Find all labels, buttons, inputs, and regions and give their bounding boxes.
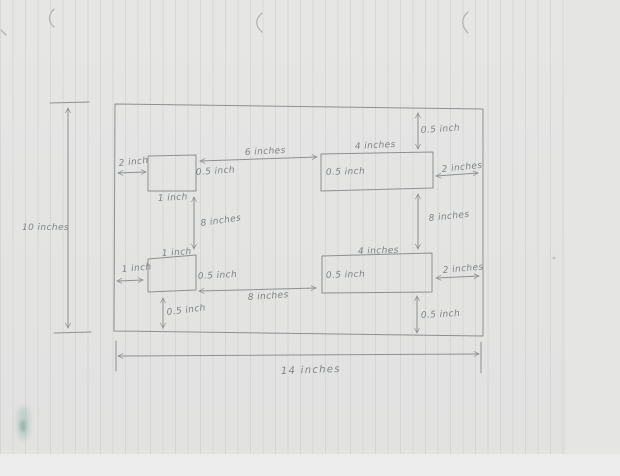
dim-bottom-left-panel: 1 inch 1 inch 0.5 inch 0.5 inch [117, 247, 237, 328]
dim-label-left-gap: 2 inch [118, 156, 149, 169]
dim-mid-right-gap: 8 inches [418, 194, 470, 249]
panel-top-left [148, 155, 196, 191]
dim-label-inner: 0.5 inch [326, 167, 366, 178]
dim-top-gap: 6 inches [200, 146, 317, 161]
dim-tick [54, 332, 91, 333]
dim-label-below: 0.5 inch [166, 303, 206, 318]
dim-label-half-inch: 0.5 inch [196, 165, 236, 178]
dim-label-right-gap: 2 inches [442, 262, 484, 276]
paper-sheet: 10 inches 14 inches 2 inch 0.5 inch 1 in… [0, 0, 620, 476]
dim-overall-height: 10 inches [22, 102, 91, 333]
dim-label-width: 4 inches [355, 140, 396, 152]
curl-mark-icon [463, 12, 468, 33]
dim-tick [50, 102, 89, 103]
outer-rectangle [114, 104, 483, 336]
dimension-sketch: 10 inches 14 inches 2 inch 0.5 inch 1 in… [0, 0, 620, 476]
dim-arrow [200, 157, 317, 161]
dim-arrow [199, 288, 316, 291]
dim-label-below: 0.5 inch [421, 309, 461, 321]
dim-label-right: 0.5 inch [198, 270, 238, 282]
dim-label-above: 1 inch [162, 247, 192, 259]
dim-label-overall-width: 14 inches [281, 364, 341, 377]
dim-label-mid-right: 8 inches [428, 210, 470, 224]
dim-overall-width: 14 inches [116, 341, 481, 377]
dim-label-bottom-gap: 8 inches [248, 290, 289, 303]
curl-mark-icon [50, 9, 55, 27]
dim-label-top-gap: 0.5 inch [421, 123, 461, 136]
paper-speck-icon [553, 257, 556, 260]
dim-bottom-right-panel: 4 inches 0.5 inch 2 inches 0.5 inch [326, 246, 484, 333]
dim-mid-left-gap: 8 inches [194, 197, 242, 249]
dim-label-mid-left: 8 inches [200, 213, 242, 229]
dim-label-inner: 0.5 inch [326, 270, 366, 281]
dim-top-left-panel: 2 inch 0.5 inch 1 inch [118, 156, 235, 204]
dim-bottom-gap: 8 inches [199, 288, 316, 303]
paper-marks [1, 9, 555, 259]
dim-arrow [118, 172, 146, 173]
dim-label-one-inch: 1 inch [158, 192, 188, 204]
edge-speck-icon [1, 30, 6, 35]
panel-bottom-left [148, 255, 196, 292]
dim-label-top-gap: 6 inches [245, 146, 286, 158]
dim-arrow [117, 280, 143, 281]
curl-mark-icon [257, 13, 262, 32]
dim-arrow [436, 276, 479, 278]
dim-label-overall-height: 10 inches [22, 223, 69, 233]
dim-arrow [118, 354, 479, 356]
outline-shapes [114, 104, 483, 336]
dim-label-width: 4 inches [358, 246, 399, 257]
dim-label-left-gap: 1 inch [121, 262, 152, 275]
dim-top-right-panel: 4 inches 0.5 inch 0.5 inch 2 inches [326, 113, 483, 178]
